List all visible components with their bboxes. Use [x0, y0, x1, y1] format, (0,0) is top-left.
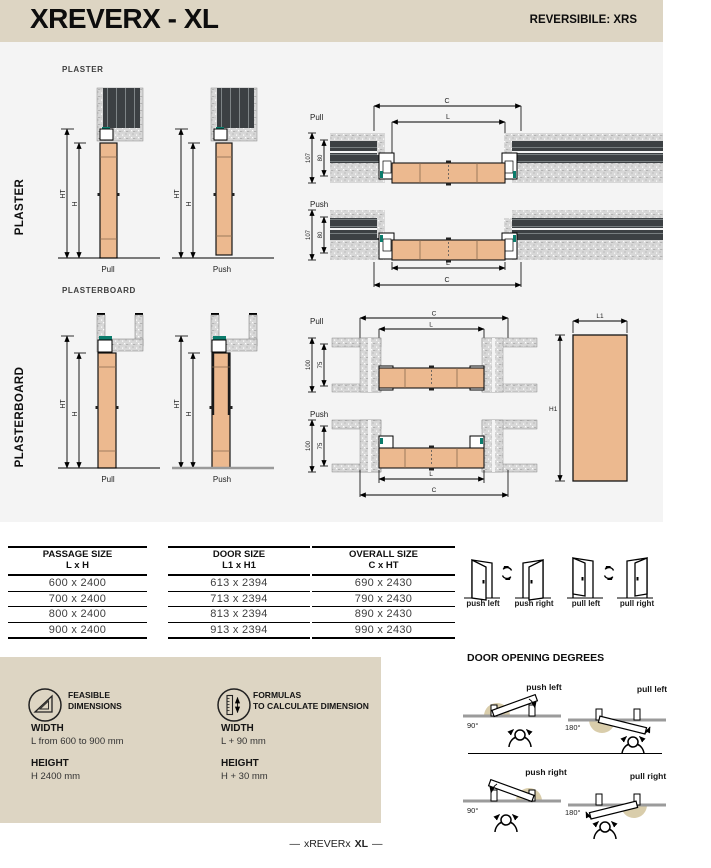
dim-c-label: C: [444, 277, 449, 284]
table-subtitle: C x HT: [312, 561, 455, 572]
dim-l-label: L: [429, 322, 433, 329]
table-header: PASSAGE SIZE L x H: [8, 548, 147, 576]
push-left-door-icon: [463, 551, 501, 603]
footer-dash-left: —: [289, 838, 300, 850]
dim-c-label: C: [432, 311, 437, 318]
formulas-height-label: HEIGHT: [221, 758, 259, 769]
formulas-width-value: L + 90 mm: [221, 736, 266, 747]
dim-100-label: 100: [306, 440, 312, 451]
table-row: 613 x 2394: [168, 576, 310, 592]
door-leaf: [216, 143, 232, 255]
dim-ht-label: HT: [60, 399, 67, 409]
wall-right: [482, 338, 537, 392]
pull-right-degree-diagram: [568, 779, 668, 841]
dim-l-label: L: [446, 114, 450, 121]
page-title: XREVERX - XL: [30, 3, 218, 35]
footer-product-model: XL: [355, 838, 368, 850]
plasterboard-vertical-section-push: HT H Push: [172, 304, 292, 496]
table-subtitle: L x H: [8, 561, 147, 572]
pull-left-door-icon: [566, 551, 604, 603]
reversible-rotation-icon: [500, 566, 514, 580]
plasterboard-vertical-section-pull: HT H Pull: [58, 304, 178, 496]
footer-dash-right: —: [372, 838, 383, 850]
pull-label: Pull: [101, 475, 115, 484]
dim-75-label: 75: [318, 442, 324, 449]
push-right-door-icon: [514, 551, 552, 603]
plaster-horizontal-section-pull: Pull C L: [305, 95, 663, 195]
wall-right: [504, 210, 663, 260]
feasible-width-value: L from 600 to 900 mm: [31, 736, 124, 747]
dim-l-label: L: [429, 471, 433, 478]
footer: —xREVERxXL—: [230, 838, 442, 850]
plaster-vertical-section-pull: HT H Pull: [58, 84, 178, 276]
pull-right-label: pull right: [610, 599, 664, 608]
dim-ht-label: HT: [60, 189, 67, 199]
dim-107-label: 107: [306, 152, 312, 163]
table-row: 790 x 2430: [312, 592, 455, 608]
reversible-badge: REVERSIBILE: XRS: [530, 14, 637, 26]
feasible-width-label: WIDTH: [31, 723, 64, 734]
dim-c-label: C: [432, 487, 437, 494]
degrees-push-left-value: 90°: [467, 721, 478, 730]
footer-product-name: xREVERx: [304, 838, 351, 850]
datasheet-page: XREVERX - XL REVERSIBILE: XRS PLASTER PL…: [0, 0, 711, 868]
push-label: Push: [310, 410, 328, 419]
plasterboard-horizontal-section-pull: Pull C L: [305, 310, 555, 410]
degrees-pull-left-label: pull left: [612, 684, 692, 694]
table-row: 913 x 2394: [168, 623, 310, 638]
side-label-plaster: PLASTER: [14, 167, 26, 247]
dim-h-label: H: [72, 201, 79, 206]
dim-ht-label: HT: [174, 189, 181, 199]
plaster-horizontal-section-push: Push: [305, 195, 663, 295]
push-label: Push: [213, 265, 231, 274]
dim-c-label: C: [444, 98, 449, 105]
pull-left-degree-diagram: [568, 694, 668, 756]
door-opening-degrees-title: DOOR OPENING DEGREES: [467, 652, 604, 664]
push-label: Push: [213, 475, 231, 484]
table-title: DOOR SIZE: [168, 550, 310, 561]
table-row: 690 x 2430: [312, 576, 455, 592]
dim-75-label: 75: [318, 361, 324, 368]
wall-left: [332, 338, 381, 392]
door-leaf-elevation: L1 H1: [548, 307, 663, 492]
formulas-width-label: WIDTH: [221, 723, 254, 734]
degrees-pull-left-value: 180°: [565, 723, 581, 732]
push-label: Push: [310, 200, 328, 209]
door-leaf: [100, 143, 117, 258]
dim-80-label: 80: [318, 154, 324, 161]
dim-100-label: 100: [306, 359, 312, 370]
table-row: 600 x 2400: [8, 576, 147, 592]
table-title: OVERALL SIZE: [312, 550, 455, 561]
pull-left-label: pull left: [563, 599, 609, 608]
table-subtitle: L1 x H1: [168, 561, 310, 572]
dim-h-label: H: [186, 201, 193, 206]
dim-h1-label: H1: [549, 406, 558, 413]
overall-size-table: OVERALL SIZE C x HT 690 x 2430 790 x 243…: [312, 546, 455, 639]
plaster-section-label: PLASTER: [62, 65, 104, 74]
table-header: DOOR SIZE L1 x H1: [168, 548, 310, 576]
feasible-dimensions-icon: [27, 687, 63, 723]
wall-left: [332, 420, 381, 472]
push-left-label: push left: [460, 599, 506, 608]
dim-h-label: H: [186, 411, 193, 416]
table-header: OVERALL SIZE C x HT: [312, 548, 455, 576]
dim-l-label: L: [446, 260, 450, 267]
plasterboard-section-label: PLASTERBOARD: [62, 286, 136, 295]
dim-l1-label: L1: [596, 313, 604, 320]
passage-size-table: PASSAGE SIZE L x H 600 x 2400 700 x 2400…: [8, 546, 147, 639]
formulas-height-value: H + 30 mm: [221, 771, 268, 782]
degrees-divider: [468, 753, 662, 754]
table-row: 700 x 2400: [8, 592, 147, 608]
dim-80-label: 80: [318, 231, 324, 238]
push-right-label: push right: [507, 599, 561, 608]
feasible-height-label: HEIGHT: [31, 758, 69, 769]
door-size-table: DOOR SIZE L1 x H1 613 x 2394 713 x 2394 …: [168, 546, 310, 639]
pull-label: Pull: [310, 113, 324, 122]
dim-ht-label: HT: [174, 399, 181, 409]
wall-left: [330, 210, 385, 260]
side-label-plasterboard: PLASTERBOARD: [14, 362, 26, 472]
table-row: 713 x 2394: [168, 592, 310, 608]
door-leaf: [573, 335, 627, 481]
pull-right-door-icon: [616, 551, 654, 603]
wall-left: [330, 133, 385, 183]
formulas-icon: [216, 687, 252, 723]
table-row: 800 x 2400: [8, 607, 147, 623]
table-row: 813 x 2394: [168, 607, 310, 623]
feasible-dimensions-title: FEASIBLE DIMENSIONS: [68, 690, 122, 712]
dim-107-label: 107: [306, 229, 312, 240]
reversible-rotation-icon: [602, 566, 616, 580]
plaster-vertical-section-push: HT H Push: [172, 84, 292, 276]
wall-right: [482, 420, 537, 472]
degrees-push-right-value: 90°: [467, 806, 478, 815]
table-row: 900 x 2400: [8, 623, 147, 638]
wall-right: [504, 133, 663, 183]
drawings-panel: PLASTER PLASTERBOARD PLASTER PLASTERBOAR…: [0, 42, 663, 522]
table-row: 990 x 2430: [312, 623, 455, 638]
dim-h-label: H: [72, 411, 79, 416]
info-box: FEASIBLE DIMENSIONS WIDTH L from 600 to …: [0, 657, 381, 823]
table-title: PASSAGE SIZE: [8, 550, 147, 561]
pull-label: Pull: [310, 317, 324, 326]
table-row: 890 x 2430: [312, 607, 455, 623]
formulas-title: FORMULAS TO CALCULATE DIMENSION: [253, 690, 369, 712]
degrees-pull-right-value: 180°: [565, 808, 581, 817]
plasterboard-horizontal-section-push: Push L: [305, 408, 555, 513]
header: XREVERX - XL REVERSIBILE: XRS: [0, 0, 663, 42]
pull-label: Pull: [101, 265, 115, 274]
feasible-height-value: H 2400 mm: [31, 771, 80, 782]
